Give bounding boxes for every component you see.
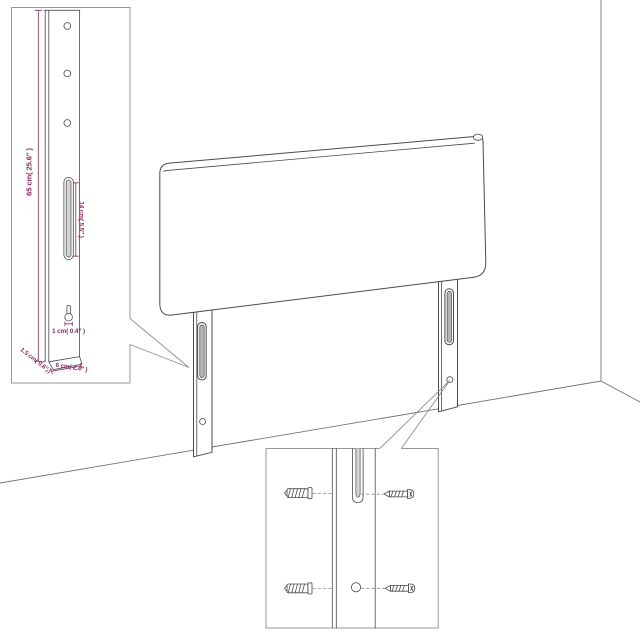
- slot-dimension-label: 14 cm( 5.5″ ): [78, 201, 85, 238]
- callout-right-lines: [380, 381, 450, 449]
- headboard-leg-left: [194, 310, 213, 457]
- callout-left-lines: [130, 319, 189, 368]
- post-keyhole: [65, 313, 73, 321]
- leg-left-screw-hole: [200, 419, 206, 425]
- post-hole-3: [64, 120, 71, 127]
- mounting-slot-inner: [356, 449, 360, 497]
- leg-left-slot-inner: [200, 325, 204, 378]
- diagram-canvas: 65 cm( 25.6″ ) 14 cm( 5.5″ ) 1 cm( 0.4″ …: [0, 0, 640, 640]
- headboard-panel: [160, 134, 486, 315]
- callout-right: [380, 381, 450, 449]
- height-dimension-label: 65 cm( 25.6″ ): [25, 148, 34, 196]
- post-hole-2: [64, 70, 71, 77]
- wall-plug-top: [285, 488, 313, 499]
- leg-right-slot-inner: [447, 291, 451, 342]
- post-slot-inner: [66, 180, 71, 257]
- inset-mounting-detail: [266, 449, 438, 629]
- hole-dimension-label: 1 cm( 0.4″ ): [52, 328, 85, 335]
- mounting-hole: [351, 583, 360, 592]
- product-assembly-diagram: 65 cm( 25.6″ ) 14 cm( 5.5″ ) 1 cm( 0.4″ …: [0, 0, 640, 640]
- panel-outline: [160, 136, 486, 315]
- post-hole-1: [64, 23, 71, 30]
- wall-plug-bottom: [285, 583, 313, 594]
- callout-left: [130, 319, 189, 368]
- inset-leg-detail: 65 cm( 25.6″ ) 14 cm( 5.5″ ) 1 cm( 0.4″ …: [12, 8, 131, 384]
- leg-right-screw-hole: [447, 377, 453, 383]
- panel-corner-curl: [473, 134, 482, 140]
